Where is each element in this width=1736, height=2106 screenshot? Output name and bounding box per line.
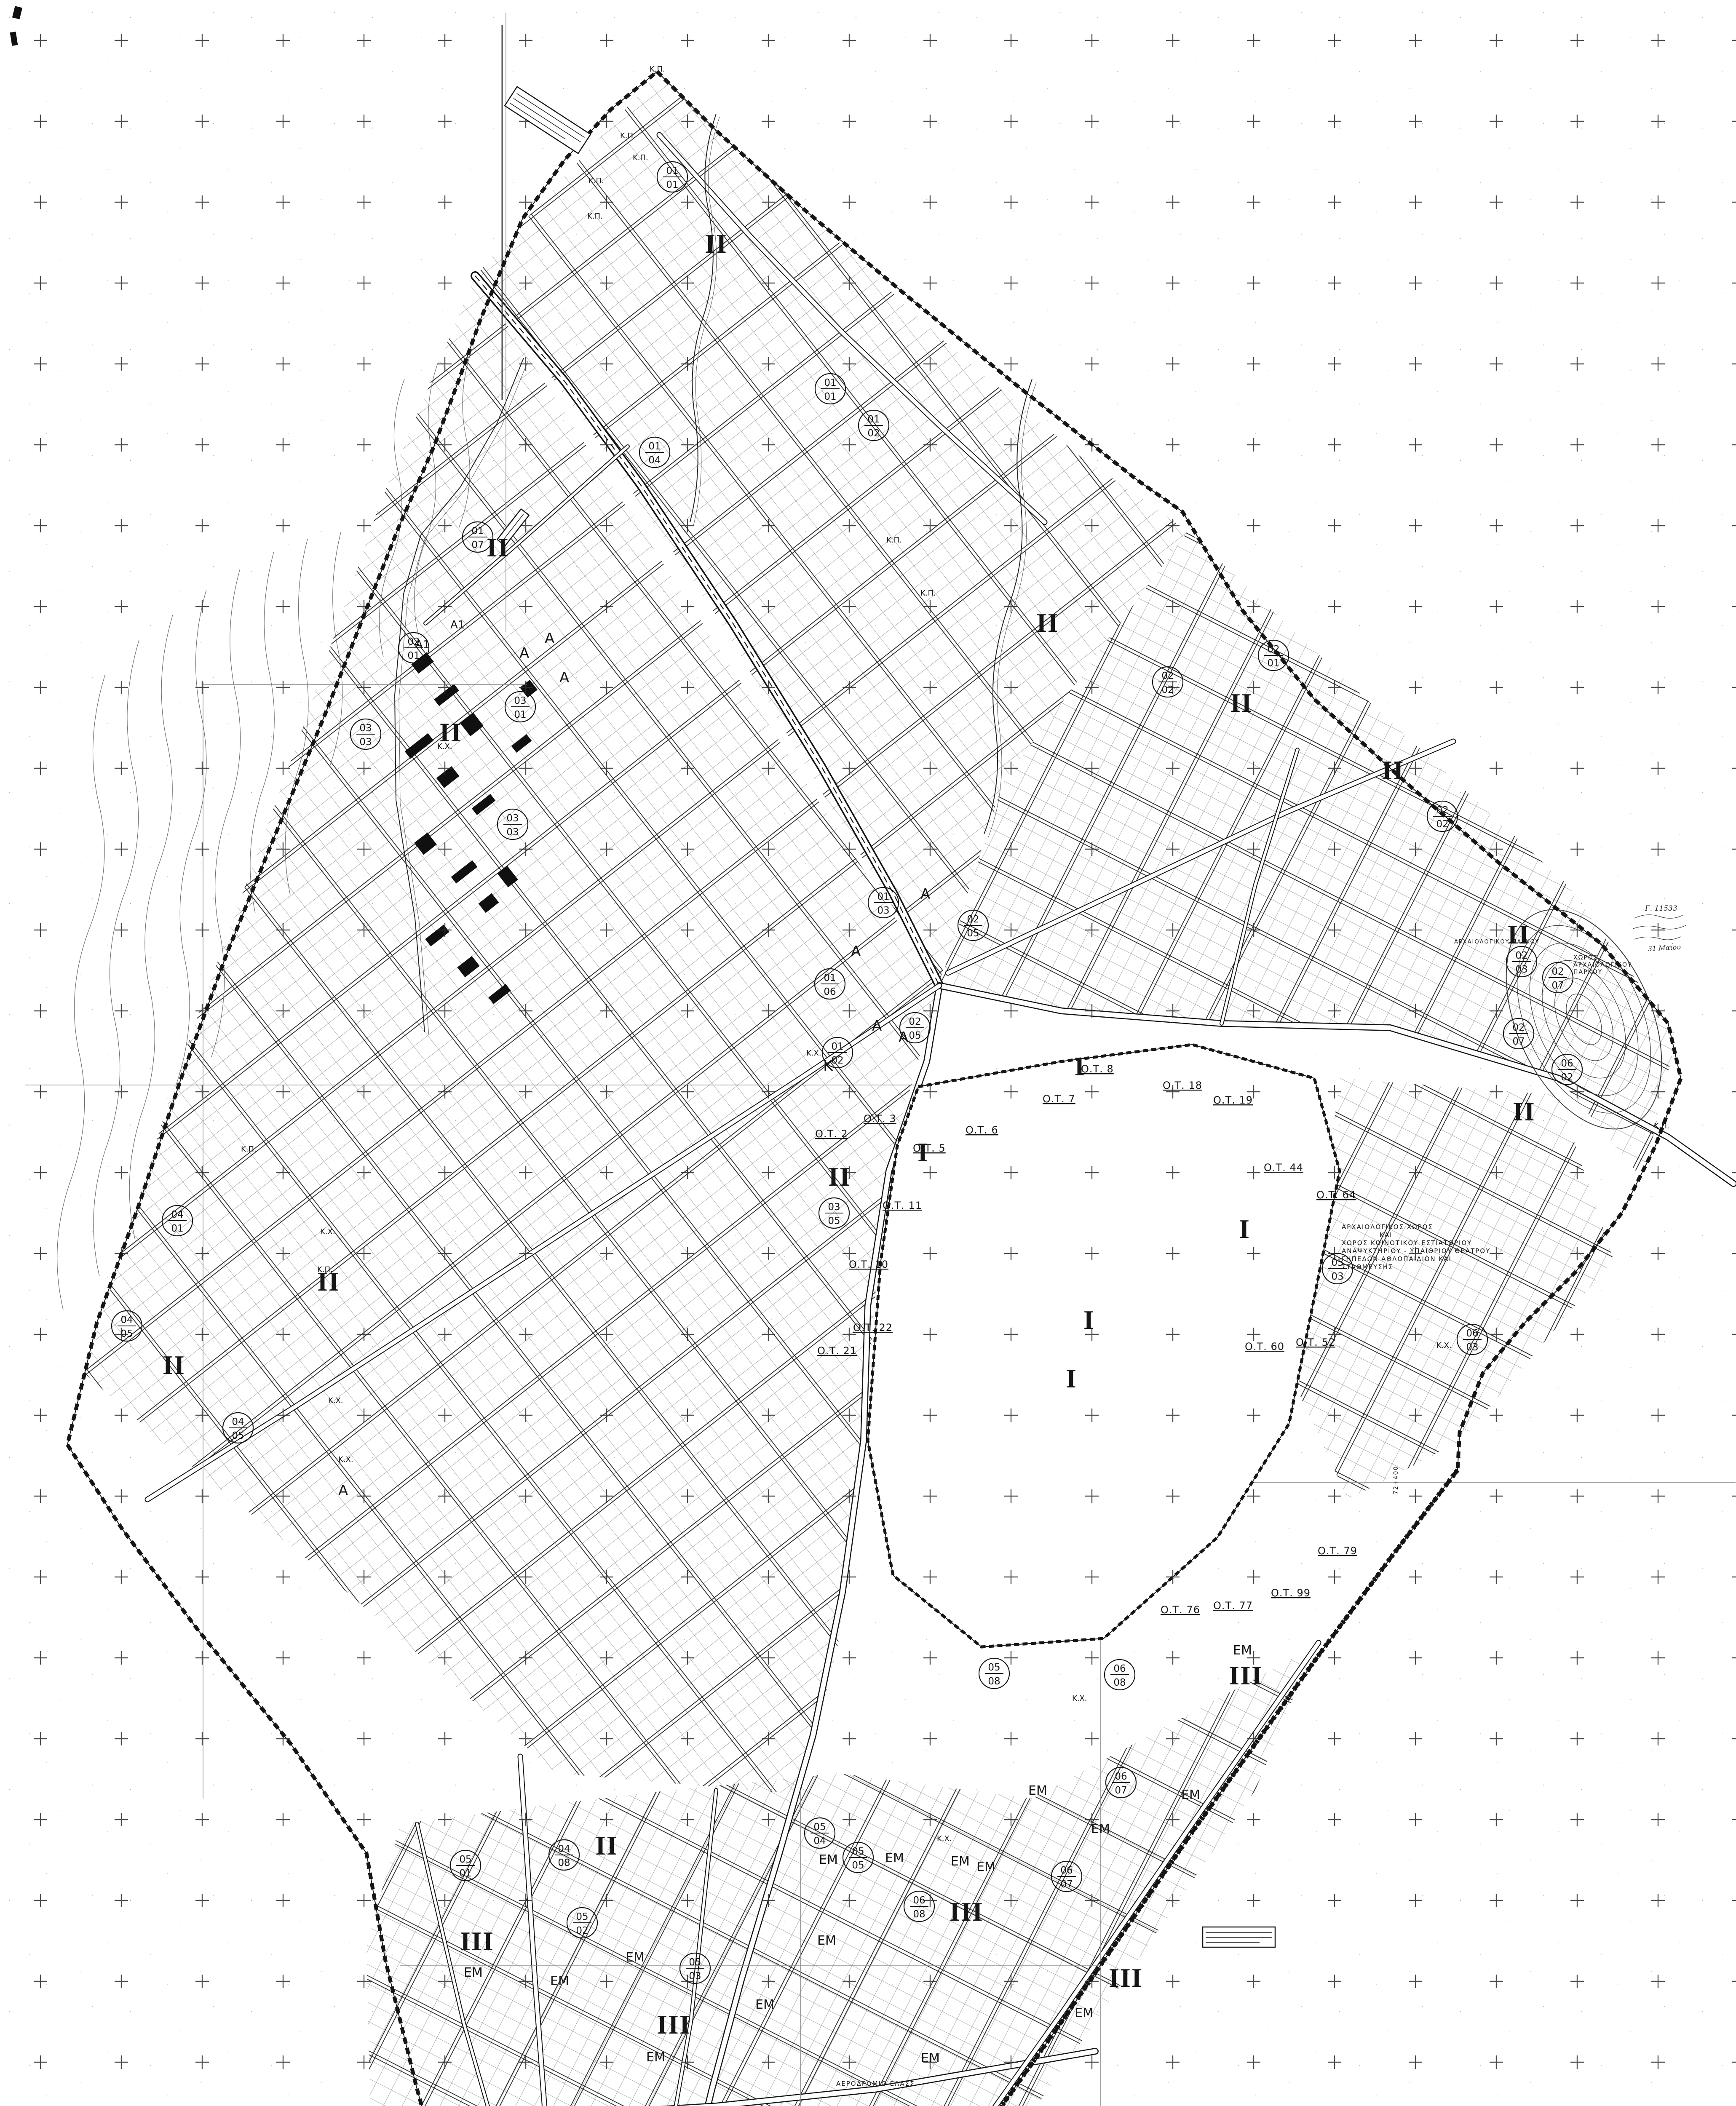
marker-label--: Α bbox=[338, 1482, 348, 1499]
marker-label--: Κ.Π. bbox=[317, 1265, 333, 1274]
circled-code-bottom: 05 bbox=[852, 1860, 864, 1871]
marker-label--: ΕΜ bbox=[921, 2051, 940, 2066]
block-label--6: Ο.Τ. 6 bbox=[966, 1124, 998, 1136]
circled-code-bottom: 02 bbox=[1161, 684, 1174, 695]
circled-code-bottom: 04 bbox=[813, 1836, 826, 1847]
circled-code-top: 04 bbox=[558, 1844, 570, 1855]
marker-label--: ΕΜ bbox=[1028, 1783, 1047, 1798]
marker-label--: Α bbox=[851, 943, 861, 960]
marker-label--: ΕΜ bbox=[1075, 2006, 1094, 2020]
zone-label-ii: II bbox=[487, 532, 509, 562]
zone-label-ii: II bbox=[1230, 688, 1253, 718]
marker-label--: ΕΜ bbox=[1091, 1822, 1110, 1836]
circled-code-top: 02 bbox=[1515, 950, 1527, 961]
circled-code-top: 01 bbox=[867, 414, 880, 425]
note-airport-caption: ΑΕΡΟΔΡΟΜΙΟ ΕΛΑΣΣ. bbox=[836, 2080, 917, 2087]
block-label--2: Ο.Τ. 2 bbox=[815, 1128, 848, 1140]
circled-code-bottom: 03 bbox=[689, 1971, 701, 1982]
circled-code-bottom: 01 bbox=[407, 650, 420, 661]
circled-code-top: 05 bbox=[689, 1957, 701, 1968]
zone-label-iii: III bbox=[1109, 1963, 1143, 1993]
circled-code-bottom: 03 bbox=[1331, 1271, 1343, 1282]
block-label--64: Ο.Τ. 64 bbox=[1316, 1189, 1356, 1201]
zone-label-ii: II bbox=[1036, 608, 1059, 638]
circled-code-bottom: 08 bbox=[558, 1857, 570, 1868]
marker-label--: ΕΜ bbox=[885, 1851, 904, 1865]
circled-code-top: 05 bbox=[459, 1854, 471, 1865]
zone-label-i: I bbox=[1083, 1305, 1095, 1335]
marker-label--: Κ.Π. bbox=[1654, 1122, 1669, 1131]
circled-code-top: 01 bbox=[666, 166, 678, 176]
circled-code-top: 04 bbox=[232, 1416, 244, 1427]
circled-code-top: 03 bbox=[514, 695, 526, 706]
survey-grid-crosses bbox=[0, 0, 1736, 2106]
marker-label--: Κ.Π. bbox=[588, 176, 604, 185]
note-archaeological-area-line: ΓΗΠΕΔΩΝ ΑΘΛΟΠΑΙΔΙΩΝ ΚΑΙ bbox=[1342, 1255, 1452, 1263]
circled-code-bottom: 02 bbox=[867, 428, 880, 439]
zone-label-iii: III bbox=[460, 1926, 494, 1956]
marker-label--1: Α1 bbox=[450, 619, 465, 631]
circled-code-bottom: 04 bbox=[648, 455, 661, 466]
marker-label--: ΕΜ bbox=[464, 1965, 483, 1980]
circled-code-top: 06 bbox=[913, 1895, 925, 1906]
circled-code-bottom: 05 bbox=[232, 1430, 244, 1441]
zone-label-i: I bbox=[1239, 1214, 1250, 1244]
marker-label--: Κ.Χ. bbox=[437, 742, 452, 751]
circled-code-top: 02 bbox=[967, 914, 979, 925]
block-label--52: Ο.Τ. 52 bbox=[1296, 1336, 1335, 1348]
marker-label--: ΕΜ bbox=[1181, 1788, 1200, 1802]
note-park-hill-line: ΧΩΡΟΣ bbox=[1573, 954, 1598, 961]
stamp-note-box bbox=[1203, 1927, 1275, 1947]
circled-code-bottom: 01 bbox=[1267, 658, 1279, 669]
circled-code-top: 06 bbox=[1113, 1663, 1126, 1674]
marker-label--: Α bbox=[872, 1018, 882, 1034]
block-label--76: Ο.Τ. 76 bbox=[1161, 1604, 1200, 1616]
zone-label-iii: III bbox=[657, 2010, 691, 2039]
block-label--60: Ο.Τ. 60 bbox=[1245, 1341, 1284, 1352]
circled-code-top: 02 bbox=[1267, 644, 1279, 655]
marker-label--: Κ.Π. bbox=[920, 589, 936, 598]
marker-label--: ΕΜ bbox=[626, 1950, 645, 1965]
block-label--18: Ο.Τ. 18 bbox=[1163, 1080, 1202, 1091]
marker-label--: Α bbox=[920, 886, 930, 903]
circled-code-bottom: 02 bbox=[576, 1925, 588, 1936]
marker-label--: Α bbox=[545, 630, 554, 647]
zone-label-ii: II bbox=[595, 1831, 618, 1860]
block-label--77: Ο.Τ. 77 bbox=[1213, 1600, 1253, 1612]
circled-code-top: 03 bbox=[359, 723, 372, 734]
block-label--79: Ο.Τ. 79 bbox=[1318, 1545, 1357, 1557]
marker-label--: ΕΜ bbox=[819, 1852, 838, 1867]
circled-code-top: 04 bbox=[171, 1209, 183, 1220]
note-park-hill-side: ΑΡΧΑΙΟΛΟΓΙΚΟΥ ΠΑΡΚΟΥ bbox=[1454, 939, 1540, 945]
circled-code-bottom: 05 bbox=[120, 1328, 133, 1339]
note-archaeological-area-line: ΣΤΑΘΜΕΥΣΗΣ bbox=[1342, 1263, 1394, 1271]
zone-label-iii: III bbox=[950, 1897, 984, 1927]
block-label--22: Ο.Τ. 22 bbox=[853, 1322, 893, 1334]
circled-code-bottom: 05 bbox=[967, 928, 979, 939]
zone-label-ii: II bbox=[1513, 1096, 1535, 1126]
marker-label--: Κ.Χ. bbox=[328, 1396, 343, 1405]
marker-label--: ΕΜ bbox=[646, 2050, 665, 2065]
circled-code-top: 01 bbox=[824, 377, 836, 388]
marker-label--: Κ.Χ. bbox=[937, 1834, 952, 1843]
circled-code-bottom: 07 bbox=[1115, 1785, 1127, 1796]
circled-code-top: 02 bbox=[909, 1016, 921, 1027]
circled-code-top: 02 bbox=[407, 636, 420, 647]
circled-code-top: 02 bbox=[1161, 671, 1174, 682]
marker-label--: Κ.Π. bbox=[650, 65, 665, 74]
circled-code-bottom: 05 bbox=[828, 1216, 840, 1227]
circled-code-top: 04 bbox=[120, 1315, 133, 1326]
marker-label--: ΕΜ bbox=[976, 1860, 995, 1874]
circled-code-bottom: 03 bbox=[877, 905, 889, 916]
marker-label--: Α bbox=[519, 645, 529, 662]
circled-code-top: 01 bbox=[877, 891, 889, 902]
marker-label--: ΕΜ bbox=[1233, 1643, 1252, 1658]
circled-code-bottom: 05 bbox=[909, 1030, 921, 1041]
marker-label--: Κ.Π. bbox=[241, 1145, 257, 1154]
marker-label--: Κ.Χ. bbox=[1072, 1694, 1087, 1703]
circled-code-bottom: 08 bbox=[988, 1676, 1000, 1687]
circled-code-bottom: 08 bbox=[1113, 1677, 1126, 1688]
circled-code-top: 01 bbox=[648, 441, 661, 452]
block-label--19: Ο.Τ. 19 bbox=[1213, 1094, 1253, 1106]
marker-label--: Κ.Π. bbox=[886, 536, 902, 545]
block-label--10: Ο.Τ. 10 bbox=[849, 1259, 888, 1270]
circled-code-bottom: 01 bbox=[514, 709, 526, 720]
marker-label--: ΕΜ bbox=[817, 1933, 836, 1948]
block-label--99: Ο.Τ. 99 bbox=[1271, 1587, 1311, 1599]
marker-label--: ΕΜ bbox=[951, 1854, 970, 1869]
marker-label--: Α bbox=[559, 669, 569, 686]
circled-code-top: 05 bbox=[576, 1911, 588, 1922]
marker-label--: Κ.Χ. bbox=[320, 1227, 335, 1236]
marker-label--: Κ.Π. bbox=[620, 131, 636, 140]
marker-label--: Κ.Π. bbox=[633, 153, 648, 162]
circled-code-top: 02 bbox=[1512, 1022, 1525, 1033]
circled-code-top: 01 bbox=[471, 526, 484, 537]
circled-code-top: 06 bbox=[1115, 1771, 1127, 1782]
block-label--7: Ο.Τ. 7 bbox=[1043, 1093, 1075, 1105]
circled-code-bottom: 03 bbox=[359, 737, 372, 748]
circled-code-bottom: 03 bbox=[1515, 964, 1527, 975]
zone-label-iii: III bbox=[1229, 1660, 1263, 1690]
circled-code-top: 01 bbox=[831, 1041, 843, 1052]
note-road-chainage: 72+400 bbox=[1393, 1466, 1399, 1494]
circled-code-bottom: 02 bbox=[1436, 819, 1448, 830]
circled-code-bottom: 01 bbox=[824, 391, 836, 402]
block-label--11: Ο.Τ. 11 bbox=[883, 1200, 922, 1211]
circled-code-bottom: 01 bbox=[666, 179, 678, 190]
circled-code-top: 06 bbox=[1466, 1328, 1478, 1339]
circled-code-top: 05 bbox=[813, 1822, 826, 1833]
block-label--44: Ο.Τ. 44 bbox=[1264, 1162, 1303, 1173]
circled-code-bottom: 07 bbox=[1060, 1879, 1073, 1890]
zone-label-ii: II bbox=[705, 229, 728, 259]
block-label--8: Ο.Τ. 8 bbox=[1081, 1063, 1114, 1075]
marker-label--: Κ.Χ. bbox=[1436, 1341, 1452, 1350]
circled-code-bottom: 03 bbox=[1466, 1342, 1478, 1353]
circled-code-bottom: 08 bbox=[913, 1909, 925, 1920]
note-archaeological-area-line: ΚΑΙ bbox=[1380, 1231, 1393, 1239]
circled-code-top: 05 bbox=[852, 1846, 864, 1857]
circled-code-bottom: 02 bbox=[831, 1055, 843, 1066]
marker-label--: ΕΜ bbox=[755, 1997, 774, 2012]
circled-code-top: 03 bbox=[828, 1202, 840, 1213]
circled-code-bottom: 07 bbox=[471, 540, 484, 551]
circled-code-bottom: 07 bbox=[1512, 1036, 1525, 1047]
circled-code-top: 05 bbox=[988, 1662, 1000, 1673]
note-archaeological-area-line: ΑΝΑΨΥΚΤΗΡΙΟΥ - ΥΠΑΙΘΡΙΟΥ ΘΕΑΤΡΟΥ bbox=[1342, 1247, 1490, 1255]
marker-label--: Κ.Χ. bbox=[806, 1049, 821, 1058]
circled-code-bottom: 01 bbox=[459, 1868, 471, 1879]
circled-code-top: 06 bbox=[1060, 1865, 1073, 1876]
marker-label--: Κ.Π. bbox=[587, 212, 603, 221]
circled-code-bottom: 03 bbox=[506, 827, 519, 838]
zone-label-ii: II bbox=[828, 1162, 851, 1192]
circled-code-top: 02 bbox=[1551, 966, 1564, 977]
circled-code-top: 06 bbox=[1561, 1058, 1573, 1069]
note-park-hill-line: ΑΡΧΑΙΟΛΟΓΙΚΟΥ bbox=[1573, 962, 1632, 968]
zone-label-i: I bbox=[1066, 1363, 1077, 1393]
block-label--3: Ο.Τ. 3 bbox=[864, 1113, 896, 1125]
note-archaeological-area-line: ΑΡΧΑΙΟΛΟΓΙΚΟΣ ΧΩΡΟΣ bbox=[1342, 1223, 1433, 1231]
circled-code-top: 01 bbox=[824, 973, 836, 984]
zone-label-ii: II bbox=[163, 1350, 185, 1380]
scanned-town-plan-sheet: IIIIIIIIIIIIIIIIIIIIIIIIIIIIIIIIIIIIIIII… bbox=[0, 0, 1736, 2106]
marker-label--: Κ.Χ. bbox=[338, 1455, 353, 1464]
note-archaeological-area-line: ΧΩΡΟΣ ΚΟΙΝΟΤΙΚΟΥ ΕΣΤΙΑΤΟΡΙΟΥ bbox=[1342, 1239, 1472, 1247]
block-label--21: Ο.Τ. 21 bbox=[817, 1345, 857, 1357]
city-plan-map: IIIIIIIIIIIIIIIIIIIIIIIIIIIIIIIIIIIIIIII… bbox=[0, 0, 1736, 2106]
zone-label-ii: II bbox=[1382, 755, 1404, 785]
circled-code-top: 02 bbox=[1436, 805, 1448, 816]
circled-code-bottom: 07 bbox=[1551, 980, 1564, 991]
circled-code-bottom: 06 bbox=[824, 986, 836, 997]
block-label--5: Ο.Τ. 5 bbox=[913, 1142, 946, 1154]
circled-code-top: 03 bbox=[506, 813, 519, 824]
note-park-hill-line: ΠΑΡΚΟΥ bbox=[1573, 969, 1602, 975]
note-handwritten-ref: Γ. 11533 bbox=[1645, 904, 1677, 913]
circled-code-bottom: 02 bbox=[1561, 1072, 1573, 1083]
circled-code-bottom: 01 bbox=[171, 1223, 183, 1234]
marker-label--: ΕΜ bbox=[550, 1974, 569, 1988]
